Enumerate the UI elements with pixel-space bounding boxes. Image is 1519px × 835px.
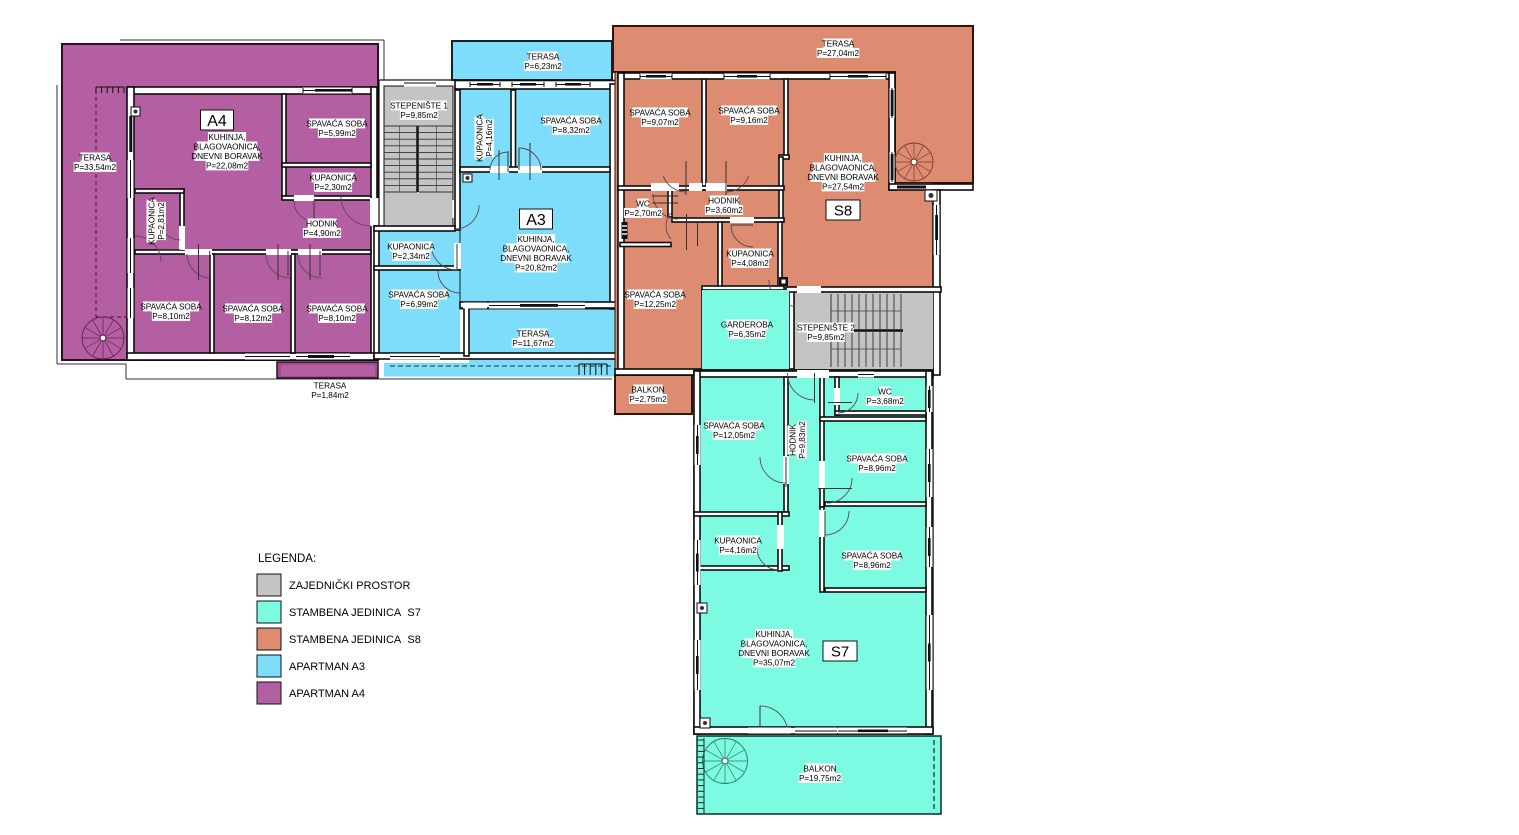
- svg-text:A3: A3: [526, 212, 546, 229]
- svg-text:BALKON: BALKON: [631, 385, 664, 394]
- svg-text:P=6,99m2: P=6,99m2: [400, 300, 438, 309]
- svg-text:KUHINJA,: KUHINJA,: [208, 133, 245, 142]
- svg-text:P=9,07m2: P=9,07m2: [641, 118, 679, 127]
- svg-text:P=9,85m2: P=9,85m2: [807, 333, 845, 342]
- svg-text:P=11,67m2: P=11,67m2: [512, 339, 554, 348]
- svg-text:SPAVAĆA SOBA: SPAVAĆA SOBA: [703, 420, 765, 430]
- svg-text:P=12,25m2: P=12,25m2: [634, 300, 677, 309]
- svg-text:P=9,16m2: P=9,16m2: [730, 116, 768, 125]
- svg-text:SPAVAĆA SOBA: SPAVAĆA SOBA: [540, 115, 602, 125]
- svg-text:DNEVNI BORAVAK: DNEVNI BORAVAK: [738, 649, 810, 658]
- svg-text:BLAGOVAONICA,: BLAGOVAONICA,: [503, 244, 570, 253]
- svg-text:TERASA: TERASA: [314, 381, 347, 390]
- svg-text:KUPAONICA: KUPAONICA: [714, 536, 762, 545]
- svg-text:KUPAONICA: KUPAONICA: [726, 249, 774, 258]
- svg-text:SPAVAĆA SOBA: SPAVAĆA SOBA: [624, 289, 686, 299]
- svg-text:DNEVNI BORAVAK: DNEVNI BORAVAK: [500, 254, 572, 263]
- svg-text:P=2,30m2: P=2,30m2: [314, 183, 352, 192]
- svg-text:P=6,35m2: P=6,35m2: [728, 330, 766, 339]
- svg-text:HODNIK: HODNIK: [788, 424, 797, 456]
- svg-text:WC: WC: [878, 387, 892, 396]
- svg-text:SPAVAĆA SOBA: SPAVAĆA SOBA: [841, 550, 903, 560]
- svg-text:TERASA: TERASA: [527, 52, 560, 61]
- svg-text:P=5,99m2: P=5,99m2: [318, 129, 356, 138]
- svg-text:SPAVAĆA SOBA: SPAVAĆA SOBA: [388, 289, 450, 299]
- svg-text:P=8,96m2: P=8,96m2: [853, 561, 891, 570]
- svg-text:APARTMAN A4: APARTMAN A4: [289, 688, 365, 700]
- svg-text:P=2,70m2: P=2,70m2: [624, 209, 662, 218]
- svg-text:P=8,96m2: P=8,96m2: [858, 464, 896, 473]
- svg-text:ZAJEDNIČKI PROSTOR: ZAJEDNIČKI PROSTOR: [289, 579, 410, 592]
- svg-text:DNEVNI BORAVAK: DNEVNI BORAVAK: [191, 152, 263, 161]
- svg-text:KUPAONICA: KUPAONICA: [387, 242, 435, 251]
- svg-text:HODNIK: HODNIK: [306, 219, 338, 228]
- svg-text:P=35,07m2: P=35,07m2: [753, 658, 796, 667]
- svg-text:P=8,10m2: P=8,10m2: [152, 312, 190, 321]
- svg-text:P=8,32m2: P=8,32m2: [552, 126, 590, 135]
- svg-text:HODNIK: HODNIK: [708, 196, 740, 205]
- svg-text:STAMBENA JEDINICA S7: STAMBENA JEDINICA S7: [289, 607, 421, 619]
- svg-text:SPAVAĆA SOBA: SPAVAĆA SOBA: [306, 303, 368, 313]
- svg-text:P=4,16m2: P=4,16m2: [485, 119, 494, 157]
- svg-text:APARTMAN A3: APARTMAN A3: [289, 661, 365, 673]
- svg-text:BLAGOVAONICA,: BLAGOVAONICA,: [741, 639, 808, 648]
- svg-text:S7: S7: [831, 643, 849, 660]
- svg-text:STAMBENA JEDINICA S8: STAMBENA JEDINICA S8: [289, 634, 421, 646]
- svg-text:WC: WC: [636, 199, 650, 208]
- svg-text:TERASA: TERASA: [79, 153, 112, 162]
- svg-text:STEPENIŠTE 1: STEPENIŠTE 1: [390, 100, 448, 110]
- svg-text:TERASA: TERASA: [822, 39, 855, 48]
- svg-text:DNEVNI BORAVAK: DNEVNI BORAVAK: [807, 173, 879, 182]
- svg-text:S8: S8: [834, 202, 852, 219]
- svg-text:P=4,16m2: P=4,16m2: [719, 546, 757, 555]
- svg-text:BLAGOVAONICA,: BLAGOVAONICA,: [810, 163, 877, 172]
- svg-text:KUHINJA,: KUHINJA,: [755, 630, 792, 639]
- svg-text:BLAGOVAONICA,: BLAGOVAONICA,: [194, 142, 261, 151]
- svg-text:P=3,68m2: P=3,68m2: [866, 397, 904, 406]
- svg-text:P=20,82m2: P=20,82m2: [515, 263, 558, 272]
- svg-text:BALKON: BALKON: [803, 764, 836, 773]
- svg-text:SPAVAĆA SOBA: SPAVAĆA SOBA: [718, 105, 780, 115]
- svg-text:A4: A4: [207, 113, 227, 130]
- svg-text:P=2,81m2: P=2,81m2: [157, 202, 166, 240]
- svg-text:SPAVAĆA SOBA: SPAVAĆA SOBA: [306, 118, 368, 128]
- svg-text:P=27,04m2: P=27,04m2: [817, 49, 860, 58]
- svg-text:P=4,90m2: P=4,90m2: [303, 229, 341, 238]
- svg-text:P=6,23m2: P=6,23m2: [524, 62, 562, 71]
- svg-text:P=8,10m2: P=8,10m2: [318, 314, 356, 323]
- svg-text:GARDEROBA: GARDEROBA: [721, 320, 774, 329]
- svg-text:SPAVAĆA SOBA: SPAVAĆA SOBA: [629, 107, 691, 117]
- svg-text:KUPAONICA: KUPAONICA: [475, 114, 484, 162]
- svg-text:P=4,08m2: P=4,08m2: [731, 259, 769, 268]
- svg-text:TERASA: TERASA: [517, 329, 550, 338]
- svg-text:SPAVAĆA SOBA: SPAVAĆA SOBA: [222, 303, 284, 313]
- svg-text:P=2,75m2: P=2,75m2: [629, 395, 667, 404]
- svg-text:LEGENDA:: LEGENDA:: [258, 553, 316, 565]
- svg-text:P=8,12m2: P=8,12m2: [234, 314, 272, 323]
- svg-text:P=9,85m2: P=9,85m2: [400, 111, 438, 120]
- svg-text:P=19,75m2: P=19,75m2: [799, 774, 842, 783]
- svg-text:KUHINJA,: KUHINJA,: [824, 154, 861, 163]
- svg-text:P=9,83m2: P=9,83m2: [798, 421, 807, 459]
- svg-text:STEPENIŠTE 2: STEPENIŠTE 2: [797, 322, 855, 332]
- svg-text:P=2,34m2: P=2,34m2: [392, 252, 430, 261]
- svg-text:KUPAONICA: KUPAONICA: [147, 197, 156, 245]
- svg-text:P=3,60m2: P=3,60m2: [705, 206, 743, 215]
- svg-text:P=33,54m2: P=33,54m2: [74, 163, 117, 172]
- svg-text:P=12,05m2: P=12,05m2: [713, 431, 756, 440]
- svg-text:P=22,08m2: P=22,08m2: [206, 161, 249, 170]
- svg-text:SPAVAĆA SOBA: SPAVAĆA SOBA: [846, 453, 908, 463]
- svg-text:SPAVAĆA SOBA: SPAVAĆA SOBA: [140, 301, 202, 311]
- svg-text:KUHINJA,: KUHINJA,: [517, 235, 554, 244]
- svg-text:P=27,54m2: P=27,54m2: [822, 182, 865, 191]
- svg-text:P=1,84m2: P=1,84m2: [311, 391, 349, 400]
- svg-text:KUPAONICA: KUPAONICA: [309, 173, 357, 182]
